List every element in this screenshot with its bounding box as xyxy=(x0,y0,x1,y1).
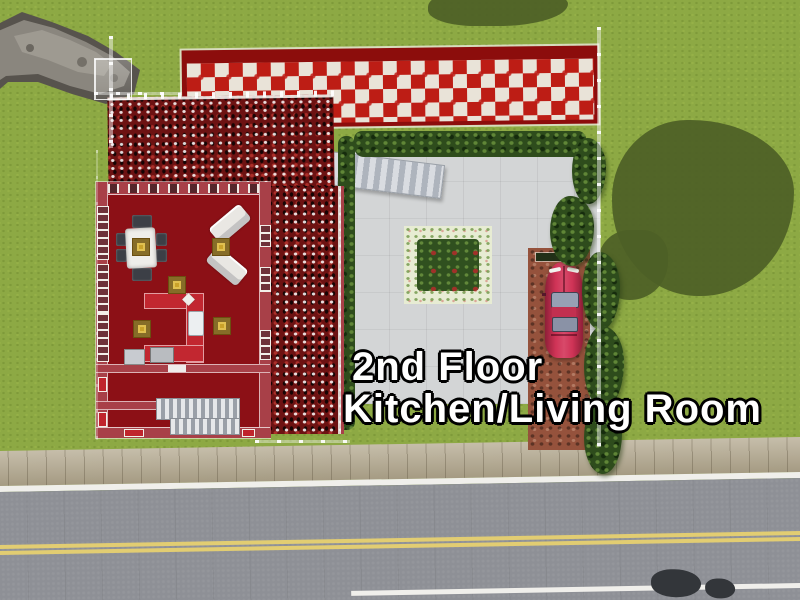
ceiling-lamp-3[interactable] xyxy=(168,276,186,294)
west-window-group-2 xyxy=(97,264,109,314)
car-mirror-left xyxy=(542,293,546,296)
interior-staircase-lower[interactable] xyxy=(170,418,240,435)
street xyxy=(0,431,800,600)
ceiling-lamp-1[interactable] xyxy=(132,238,150,256)
ceiling-lamp-5[interactable] xyxy=(213,317,231,335)
garden-bushes xyxy=(417,239,479,291)
caption-line-2: Kitchen/Living Room xyxy=(343,388,762,430)
east-window-group-1 xyxy=(260,225,271,247)
ceiling-lamp-4[interactable] xyxy=(133,320,151,338)
lot-fence-west xyxy=(96,150,98,440)
roof-north-band xyxy=(107,94,334,194)
car-rear-window xyxy=(552,317,578,332)
dining-chair[interactable] xyxy=(156,249,167,262)
dining-chair[interactable] xyxy=(156,233,167,246)
floor-caption: 2nd Floor Kitchen/Living Room xyxy=(343,346,762,430)
hedge-top[interactable] xyxy=(354,131,586,157)
interior-staircase-upper[interactable] xyxy=(156,398,240,420)
car-trunk-seam xyxy=(551,334,577,336)
house-interior[interactable] xyxy=(96,182,270,438)
internal-door[interactable] xyxy=(168,365,186,372)
south-window-1 xyxy=(124,429,144,437)
north-windows xyxy=(108,184,260,193)
south-window-2 xyxy=(242,429,255,437)
dining-chair[interactable] xyxy=(132,215,152,228)
stove[interactable] xyxy=(150,347,174,363)
game-viewport: 2nd Floor Kitchen/Living Room xyxy=(0,0,800,600)
caption-line-1: 2nd Floor xyxy=(352,346,762,388)
west-door-1[interactable] xyxy=(98,377,107,392)
west-door-2[interactable] xyxy=(98,412,107,427)
garden-plot[interactable] xyxy=(404,226,492,304)
car-windshield xyxy=(551,292,579,308)
car-roof xyxy=(552,307,576,317)
roadside-shadow-1 xyxy=(651,569,701,598)
east-window-group-2 xyxy=(260,267,271,292)
east-window-group-3 xyxy=(260,330,271,360)
kitchen-sink[interactable] xyxy=(188,311,204,336)
lot-fence-south xyxy=(255,440,350,443)
ceiling-lamp-2[interactable] xyxy=(212,238,230,256)
dining-chair[interactable] xyxy=(132,268,152,281)
wall-wireframe-panel xyxy=(94,58,132,100)
roadside-shadow-2 xyxy=(705,578,735,599)
west-window-group-3 xyxy=(97,314,109,362)
wall-internal-a xyxy=(96,364,270,373)
wall-internal-b xyxy=(96,401,158,410)
fridge[interactable] xyxy=(124,349,145,365)
wall-north xyxy=(96,182,270,195)
wall-interior-east xyxy=(259,182,271,438)
car-hood-seam xyxy=(563,266,565,292)
west-window-group-1 xyxy=(97,206,109,260)
roof-east-band xyxy=(264,186,341,434)
